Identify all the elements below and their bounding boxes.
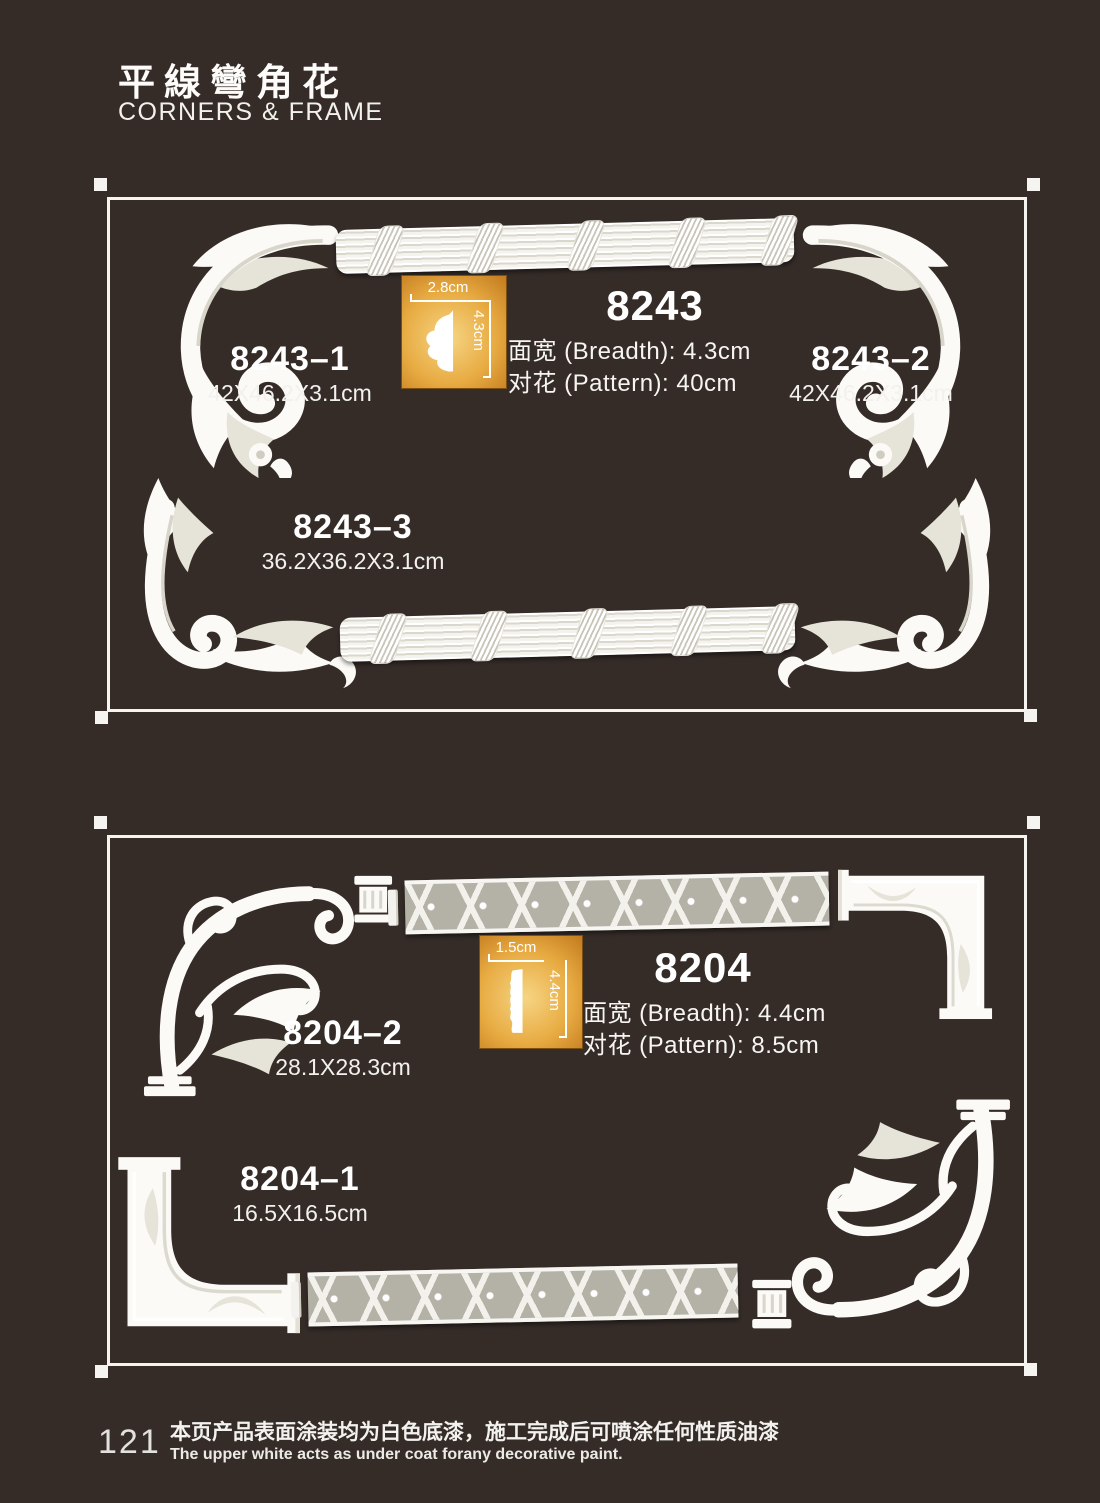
pattern-spec-8204: 对花 (Pattern): 8.5cm — [583, 1025, 819, 1060]
product-size: 16.5X16.5cm — [195, 1200, 405, 1227]
display-frame-8243: 2.8cm 4.3cm 8243 面宽 (Breadth): 4.3cm 对花 … — [107, 197, 1027, 712]
cross-section-profile-8204 — [492, 962, 546, 1040]
frame-corner-mark — [1027, 178, 1040, 191]
product-label-8204-1: 8204–1 16.5X16.5cm — [195, 1160, 405, 1227]
frame-corner-mark — [1024, 1363, 1037, 1376]
profile-box-8243: 2.8cm 4.3cm — [402, 276, 506, 388]
corner-ornament-8243-3-mirror-photo — [778, 476, 1016, 702]
product-code-8204: 8204 — [558, 944, 848, 992]
frame-corner-mark — [1027, 816, 1040, 829]
product-label-8204-2: 8204–2 28.1X28.3cm — [238, 1014, 448, 1081]
product-size: 28.1X28.3cm — [238, 1054, 448, 1081]
frame-corner-mark — [1024, 709, 1037, 722]
corner-ornament-bottom-right-photo — [744, 1076, 1012, 1358]
product-code: 8243–3 — [243, 508, 463, 547]
page-number: 121 — [98, 1423, 161, 1462]
product-code: 8204–2 — [238, 1014, 448, 1053]
display-frame-8204: 1.5cm 4.4cm 8204 面宽 (Breadth): 4.4cm 对花 … — [107, 835, 1027, 1366]
product-label-8243-3: 8243–3 36.2X36.2X3.1cm — [243, 508, 463, 575]
product-label-8243-2: 8243–2 42X46.2X3.1cm — [766, 340, 976, 407]
product-size: 36.2X36.2X3.1cm — [243, 548, 463, 575]
dimension-line-width — [488, 960, 544, 962]
profile-width-label: 1.5cm — [480, 939, 552, 956]
product-size: 42X46.2X3.1cm — [766, 380, 976, 407]
profile-width-label: 2.8cm — [402, 279, 494, 296]
frame-corner-mark — [94, 178, 107, 191]
breadth-spec-8204: 面宽 (Breadth): 4.4cm — [583, 993, 826, 1028]
footer-note-zh: 本页产品表面涂装均为白色底漆，施工完成后可喷涂任何性质油漆 — [170, 1416, 779, 1446]
frame-corner-mark — [95, 711, 108, 724]
moulding-strip-8204-top — [404, 872, 829, 935]
cross-section-profile-8243 — [414, 302, 468, 380]
breadth-spec-8243: 面宽 (Breadth): 4.3cm — [508, 331, 751, 366]
product-code: 8243–1 — [185, 340, 395, 379]
dimension-line-width — [410, 300, 491, 302]
footer-note-en: The upper white acts as under coat foran… — [170, 1446, 623, 1464]
frame-corner-mark — [95, 1365, 108, 1378]
profile-height-label: 4.3cm — [470, 310, 487, 351]
frame-corner-mark — [94, 816, 107, 829]
product-code-8243: 8243 — [510, 282, 800, 330]
moulding-strip-8243-bottom — [340, 606, 796, 662]
product-size: 42X46.2X3.1cm — [185, 380, 395, 407]
product-code: 8243–2 — [766, 340, 976, 379]
product-label-8243-1: 8243–1 42X46.2X3.1cm — [185, 340, 395, 407]
dimension-line-height — [489, 300, 491, 378]
moulding-strip-8204-bottom — [307, 1264, 738, 1327]
pattern-spec-8243: 对花 (Pattern): 40cm — [508, 363, 737, 398]
page-title-en: CORNERS & FRAME — [118, 98, 384, 127]
catalog-page: 平線彎角花 CORNERS & FRAME — [0, 0, 1100, 1503]
product-code: 8204–1 — [195, 1160, 405, 1199]
corner-piece-top-right-photo — [838, 864, 994, 1020]
moulding-strip-8243-top — [336, 218, 795, 274]
